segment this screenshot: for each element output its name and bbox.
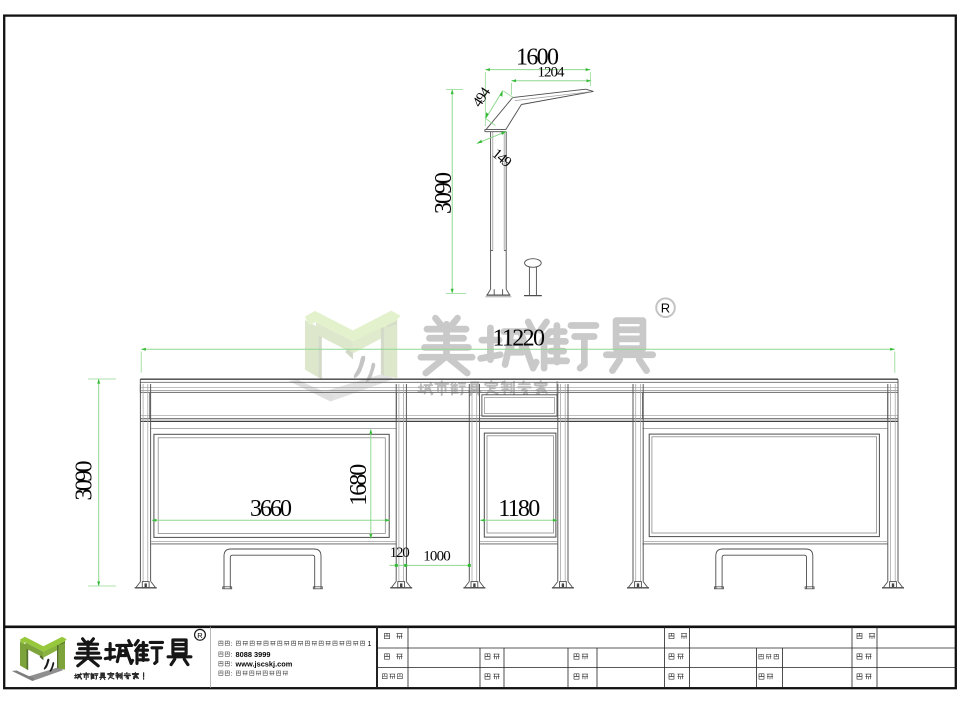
svg-text:3090: 3090 [431, 172, 457, 214]
svg-text:3090: 3090 [72, 461, 98, 501]
svg-text:8088 3999: 8088 3999 [236, 650, 271, 659]
svg-text::: : [231, 652, 233, 659]
svg-text:R: R [661, 301, 670, 316]
svg-text:3660: 3660 [250, 496, 292, 522]
svg-text::: : [231, 641, 233, 648]
svg-text:www.jscskj.com: www.jscskj.com [235, 660, 293, 669]
svg-text:1180: 1180 [498, 496, 540, 522]
svg-text:1000: 1000 [423, 548, 451, 564]
svg-text::: : [231, 671, 233, 678]
svg-text:1204: 1204 [538, 65, 566, 81]
svg-text:R: R [197, 631, 203, 640]
svg-text:1: 1 [368, 641, 372, 648]
svg-text:11220: 11220 [492, 326, 545, 352]
svg-text:1680: 1680 [346, 464, 372, 506]
svg-text:120: 120 [390, 545, 410, 561]
svg-text::: : [231, 661, 233, 668]
